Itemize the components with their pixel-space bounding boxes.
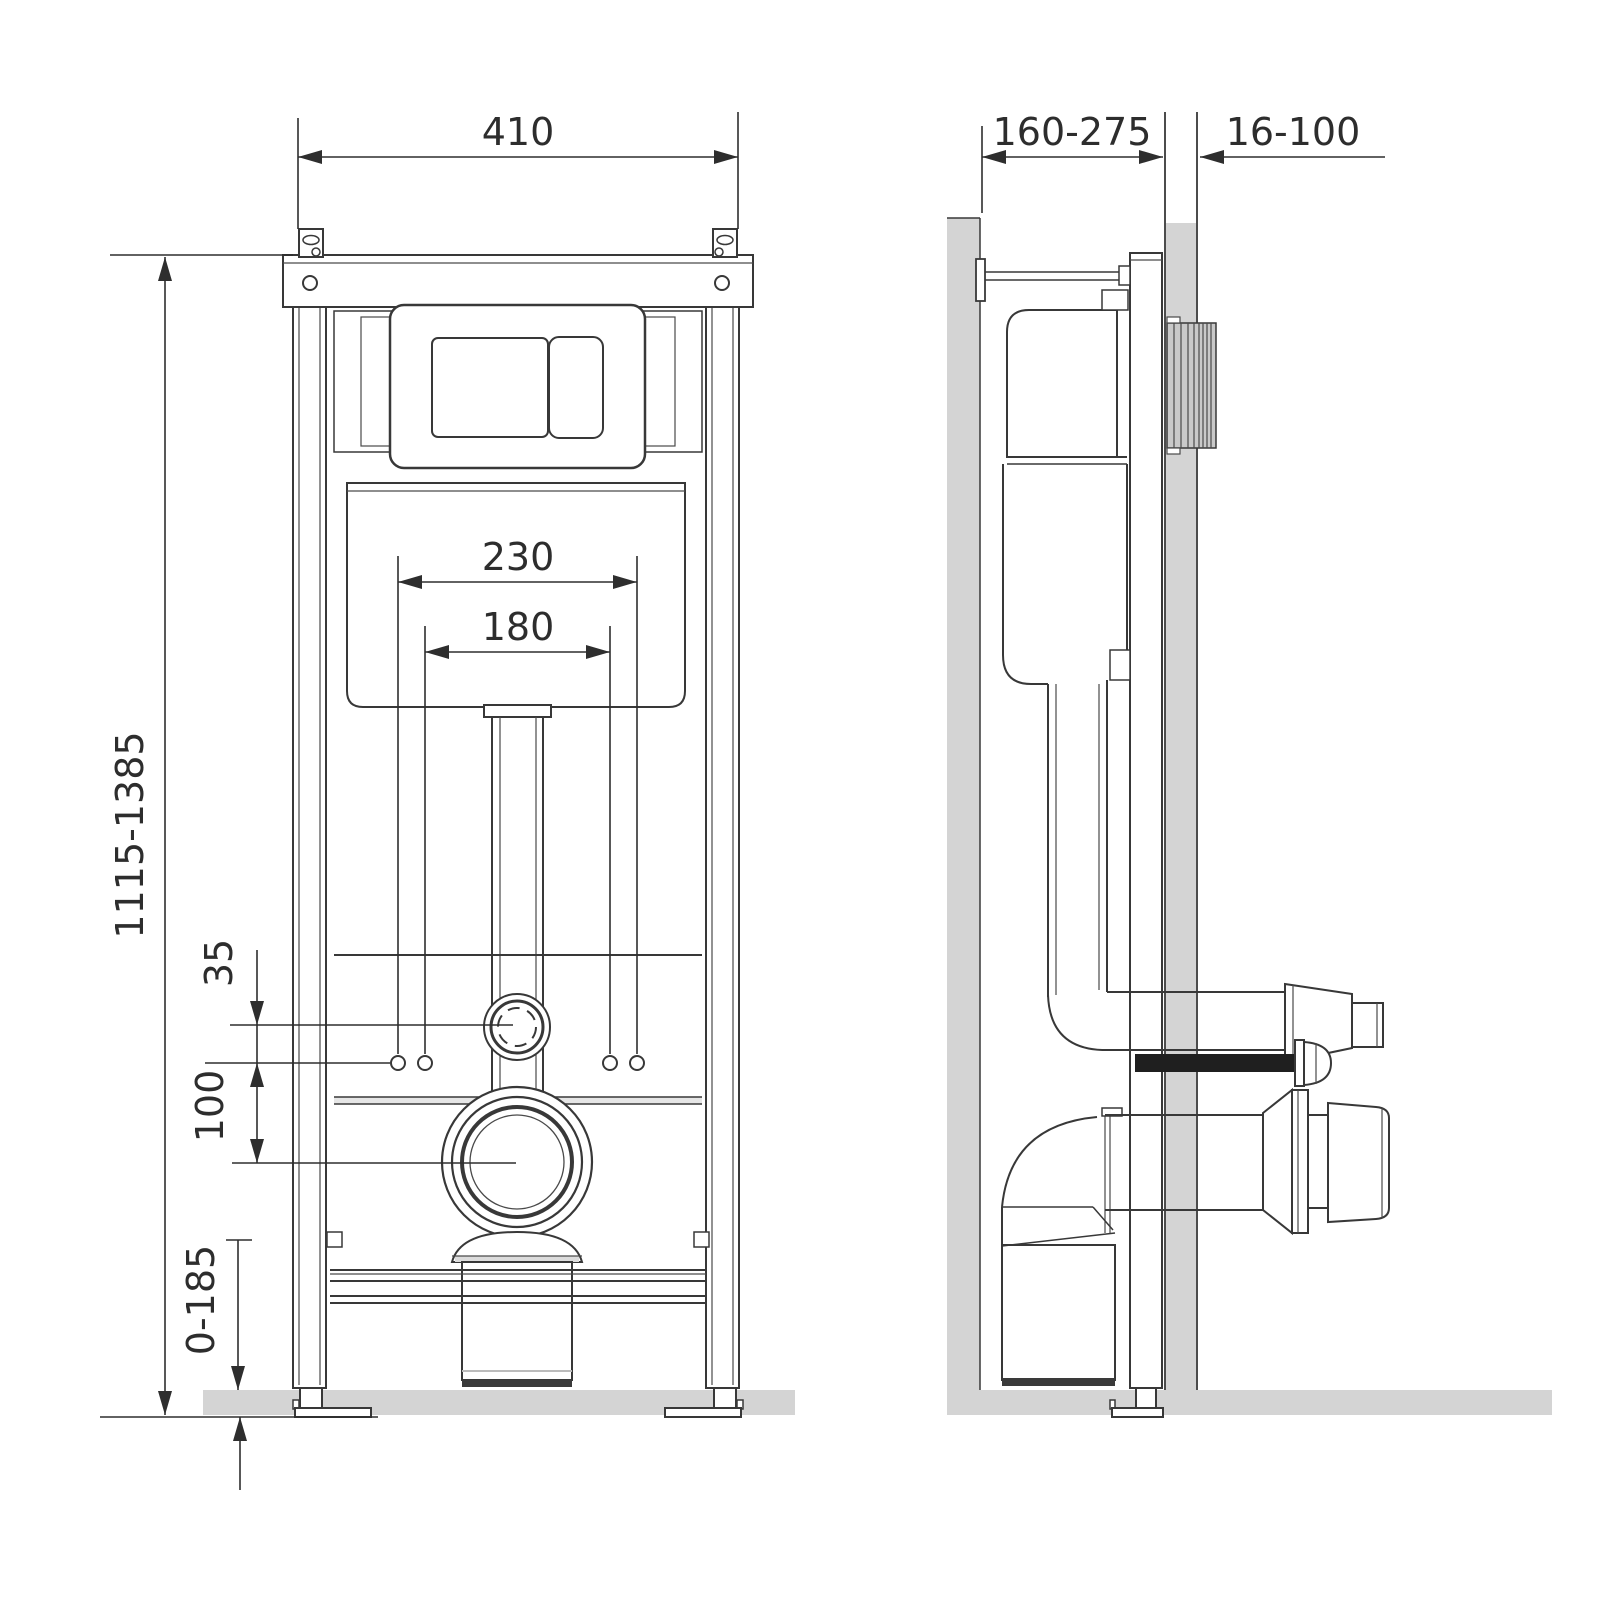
pipe-collar: [484, 705, 551, 717]
wall-bracket-right: [713, 229, 737, 257]
dim-label-410: 410: [482, 110, 555, 154]
dim-leg-adjustment: 0-185: [179, 1240, 252, 1490]
flush-plate: [390, 305, 645, 468]
front-view: [203, 229, 795, 1417]
stud-hole-inner-right: [603, 1056, 617, 1070]
dim-frame-width: 410: [298, 110, 738, 229]
dim-label-160-275: 160-275: [993, 110, 1152, 154]
flush-button-large: [432, 338, 548, 437]
finished-wall-layer: [1165, 112, 1197, 1390]
dim-label-180: 180: [482, 605, 555, 649]
dim-wall-finish: 16-100: [1200, 110, 1385, 164]
outlet-box-front: [462, 1262, 572, 1380]
stud-hole-outer-right: [630, 1056, 644, 1070]
fill-valve-cap: [1102, 290, 1128, 310]
outlet-box-side: [1002, 1245, 1115, 1380]
installation-frame-drawing: 410 1115-1385 230 180: [0, 0, 1600, 1600]
water-inlet-connection: [484, 994, 550, 1060]
frame-rail-left: [293, 255, 326, 1388]
tank-outlet-nub: [1110, 650, 1130, 680]
back-wall: [947, 218, 980, 1390]
floor-side: [947, 1390, 1552, 1415]
rail-clip-right: [694, 1232, 709, 1247]
flush-plate-shaft-side: [1167, 317, 1216, 454]
dim-label-100: 100: [188, 1070, 232, 1143]
bolt-hole-right: [715, 276, 729, 290]
cistern-side: [1003, 290, 1130, 684]
waste-connector-fitting: [1263, 1090, 1389, 1233]
dim-label-16-100: 16-100: [1226, 110, 1361, 154]
rail-clip-left: [327, 1232, 342, 1247]
frame-rail-right: [706, 255, 739, 1388]
dim-install-depth: 160-275: [982, 110, 1163, 213]
top-crossbar: [283, 255, 753, 307]
stud-hole-inner-left: [418, 1056, 432, 1070]
dim-label-35: 35: [197, 939, 241, 987]
flush-button-small: [549, 337, 603, 438]
bolt-hole-left: [303, 276, 317, 290]
frame-post-side: [1130, 253, 1162, 1388]
drain-outlet-circle: [442, 1087, 592, 1237]
side-view: [947, 112, 1552, 1417]
dim-label-0-185: 0-185: [179, 1245, 223, 1355]
technical-drawing-canvas: 410 1115-1385 230 180: [0, 0, 1600, 1600]
dim-label-1115-1385: 1115-1385: [108, 731, 152, 938]
stud-hole-outer-left: [391, 1056, 405, 1070]
wall-bracket-left: [299, 229, 323, 257]
outlet-bend-front: [452, 1232, 582, 1387]
dim-label-230: 230: [482, 535, 555, 579]
